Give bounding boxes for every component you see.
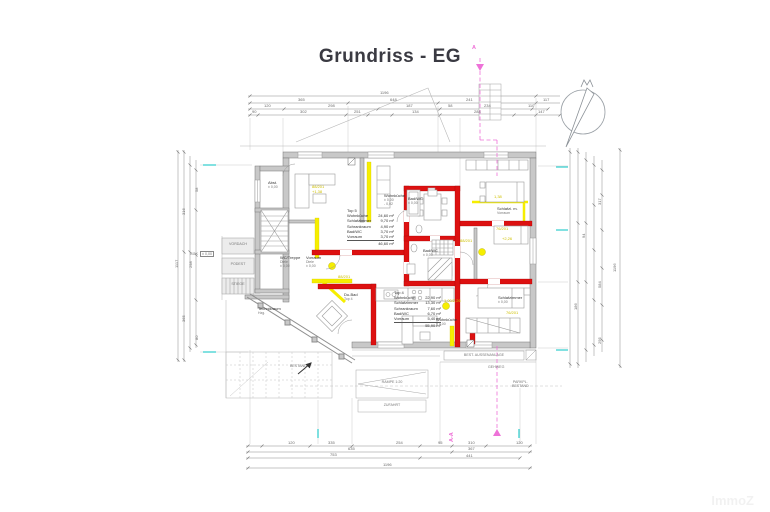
aussenanlage-label: BEST. AUSSENANLAGE: [447, 353, 521, 357]
parkplatz-label: PARKPL.BESTAND: [512, 380, 529, 388]
dim-label: 1,38: [494, 194, 502, 199]
table-total: 55,90 m²: [394, 322, 441, 328]
section-marker-top: A: [472, 45, 476, 51]
dim-label: 1196: [612, 263, 617, 272]
dim-label: 76/201: [506, 310, 518, 315]
floorplan-drawing: [0, 0, 770, 512]
dim-label: 187: [406, 103, 413, 108]
dim-label: 584: [597, 281, 602, 288]
room-label-wohnkueche-1: Wohnküche± 0,00- 0,02: [384, 193, 405, 207]
conservatory-glazing: [247, 294, 355, 363]
dim-label: 1,00/2,26: [444, 298, 461, 303]
dim-label: 648: [390, 97, 397, 102]
stiege-label: STIEGE: [223, 282, 253, 286]
dim-label: 58: [448, 103, 452, 108]
dim-label: 365: [298, 97, 305, 102]
table-row: Vorraum3,70 m²: [347, 234, 394, 239]
gehweg-label: GEHWEG: [488, 365, 504, 369]
watermark: ImmoZ: [711, 493, 754, 508]
podest-label: PODEST: [223, 262, 253, 266]
zufahrt-label: ZUFAHRT: [362, 403, 422, 407]
dim-label: 58: [194, 188, 199, 192]
north-arrow: [561, 80, 605, 147]
dim-label: 335: [328, 440, 335, 445]
dim-label: 120: [264, 103, 271, 108]
table-row: Vorraum5,40 m²: [394, 316, 441, 321]
dim-label: 367: [468, 446, 475, 451]
floorplan-page: Grundriss - EG A A-A Top 5 Wohnküche24,6…: [0, 0, 770, 512]
room-label-du-bad: Du-BadTop 4: [344, 292, 358, 301]
room-label-technikraum: TechnikraumHzg.: [258, 306, 281, 315]
dim-label: 317: [597, 198, 602, 205]
dim-label: 94: [581, 234, 586, 238]
dim-label: 88/201: [460, 238, 472, 243]
dim-label: 76/201: [496, 226, 508, 231]
dim-label: 134: [412, 109, 419, 114]
gok-label: GOK± 0,00: [190, 252, 214, 256]
dim-label: 120: [288, 440, 295, 445]
page-title: Grundriss - EG: [319, 46, 461, 68]
dim-label: 88/201: [338, 274, 350, 279]
room-label-abst: Abst.± 0,00: [268, 180, 278, 189]
room-label-vorraum: VorraumDiele± 0,00: [306, 255, 321, 269]
dim-label: 298: [328, 103, 335, 108]
room-label-wc-treppe: WC/TreppeDiele± 0,00: [280, 255, 300, 269]
room-label-wohnkueche-2: Wohnküche± 0,00: [436, 317, 457, 326]
chimney: [479, 84, 501, 120]
dim-label: 753: [330, 452, 337, 457]
dim-label: 316: [181, 208, 186, 215]
dim-label: 95: [438, 440, 442, 445]
dim-label: 635: [348, 446, 355, 451]
dim-label: +1,38: [312, 189, 322, 194]
dim-label: 284: [474, 109, 481, 114]
room-label-schlafzimmer-1: Schlafzi. m.Vorraum: [497, 206, 518, 215]
dim-label: 120: [516, 440, 523, 445]
dim-label: 117: [543, 97, 549, 102]
room-label-schlafzimmer-2: Schlafzimmer± 0,00: [498, 295, 522, 304]
dim-label: 251: [354, 109, 361, 114]
section-marker-bottom: A-A: [449, 432, 455, 442]
dim-label: 1196: [383, 462, 392, 467]
dim-label: 90: [252, 109, 256, 114]
dim-label: 365: [181, 315, 186, 322]
rampe-label: RAMPE 1:20: [364, 380, 420, 384]
bestand-label: BESTAND: [290, 364, 307, 368]
vordach-label: VORDACH: [223, 242, 253, 246]
dim-label: +2,26: [502, 236, 512, 241]
dim-label: 310: [468, 440, 475, 445]
dim-label: 186: [573, 303, 578, 310]
dim-label: 295: [597, 337, 602, 344]
terrace-grid: [226, 352, 332, 398]
room-table-top4: Top 4 Wohnküche22,90 m² Schlafzimmer13,3…: [394, 290, 441, 328]
dim-label: 147: [538, 109, 545, 114]
dim-label: 1196: [380, 90, 389, 95]
table-total: 46,60 m²: [347, 240, 394, 246]
room-label-bad-wc-1: Bad/WC± 0,00: [408, 196, 423, 205]
dim-label: 1117: [174, 260, 179, 268]
dim-label: 234: [484, 103, 491, 108]
dim-label: 302: [300, 109, 307, 114]
dim-label: 298: [188, 261, 193, 268]
room-table-top5: Top 5 Wohnküche24,60 m² Schlafzimmer9,70…: [347, 208, 394, 246]
room-label-bad-wc-2: Bad/WC± 0,00: [423, 248, 438, 257]
dim-label: 80: [194, 336, 199, 340]
dim-label: 110: [528, 103, 534, 108]
dim-label: 254: [396, 440, 403, 445]
dim-label: 241: [466, 97, 473, 102]
dim-label: 441: [466, 453, 473, 458]
